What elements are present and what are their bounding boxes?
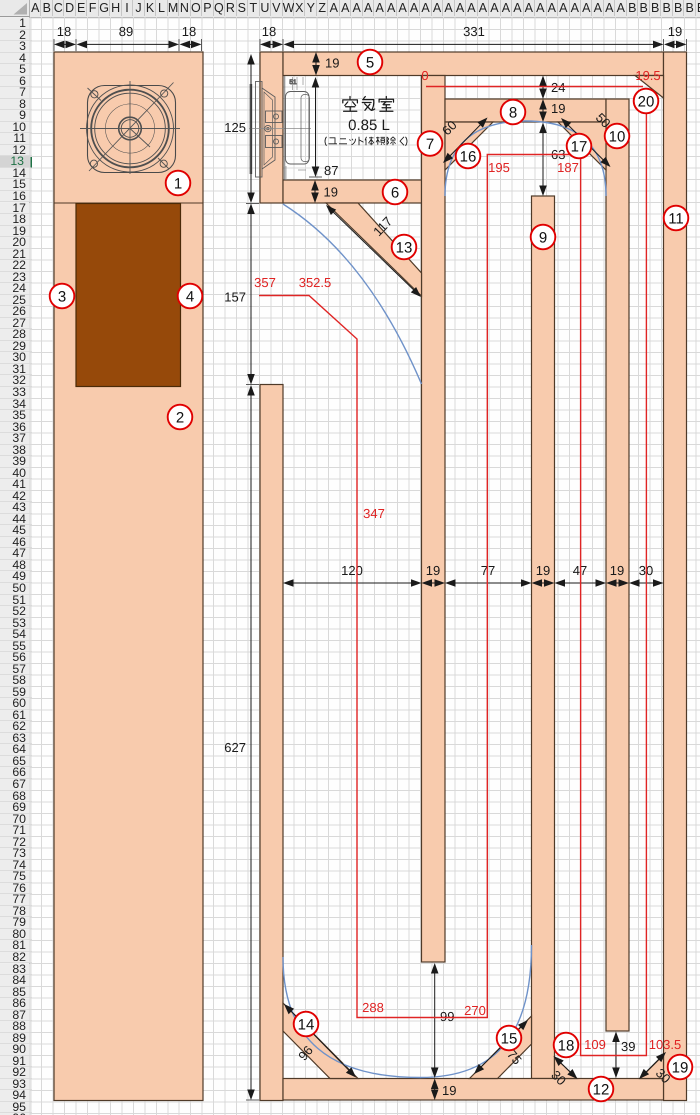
svg-text:19: 19 [672, 1059, 689, 1076]
svg-text:627: 627 [224, 740, 246, 755]
svg-text:9: 9 [539, 229, 547, 246]
svg-text:109: 109 [584, 1037, 606, 1052]
svg-text:2: 2 [176, 409, 184, 426]
svg-text:0: 0 [421, 68, 428, 83]
svg-text:11: 11 [668, 210, 684, 227]
svg-text:99: 99 [440, 1009, 454, 1024]
svg-text:19: 19 [325, 56, 339, 71]
svg-text:89: 89 [119, 24, 133, 39]
svg-text:120: 120 [341, 563, 363, 578]
svg-text:157: 157 [224, 290, 246, 305]
svg-text:87: 87 [324, 163, 338, 178]
svg-text:270: 270 [464, 1003, 486, 1018]
svg-text:103.5: 103.5 [649, 1037, 682, 1052]
svg-text:10: 10 [609, 128, 626, 145]
svg-text:195: 195 [488, 160, 510, 175]
svg-text:3: 3 [58, 288, 66, 305]
svg-text:7: 7 [426, 136, 434, 153]
svg-text:331: 331 [463, 24, 485, 39]
svg-text:6: 6 [391, 184, 399, 201]
svg-text:187: 187 [557, 160, 579, 175]
svg-text:18: 18 [262, 24, 276, 39]
svg-text:1: 1 [174, 175, 182, 192]
svg-text:13: 13 [396, 239, 413, 256]
svg-text:5: 5 [366, 54, 374, 71]
svg-text:19: 19 [610, 563, 624, 578]
svg-text:19: 19 [536, 563, 550, 578]
svg-text:19: 19 [324, 185, 338, 200]
svg-text:12: 12 [593, 1081, 610, 1098]
svg-text:24: 24 [551, 80, 565, 95]
svg-text:357: 357 [254, 275, 276, 290]
svg-text:352.5: 352.5 [299, 275, 332, 290]
svg-text:4: 4 [186, 288, 194, 305]
svg-text:19: 19 [442, 1083, 456, 1098]
svg-text:18: 18 [182, 24, 196, 39]
svg-text:19: 19 [668, 24, 682, 39]
svg-text:16: 16 [460, 148, 477, 165]
svg-text:19: 19 [426, 563, 440, 578]
svg-text:17: 17 [571, 138, 588, 155]
svg-text:19: 19 [551, 101, 565, 116]
svg-text:18: 18 [558, 1037, 575, 1054]
svg-text:8: 8 [509, 104, 517, 121]
svg-text:288: 288 [362, 1000, 384, 1015]
svg-text:15: 15 [501, 1030, 518, 1047]
svg-text:19.5: 19.5 [635, 68, 660, 83]
svg-text:39: 39 [621, 1039, 635, 1054]
svg-text:347: 347 [363, 506, 385, 521]
svg-text:0.85 L: 0.85 L [348, 117, 390, 134]
svg-text:14: 14 [298, 1016, 315, 1033]
svg-text:20: 20 [638, 93, 655, 110]
svg-text:18: 18 [57, 24, 71, 39]
svg-text:125: 125 [224, 120, 246, 135]
svg-text:51: 51 [289, 79, 297, 86]
